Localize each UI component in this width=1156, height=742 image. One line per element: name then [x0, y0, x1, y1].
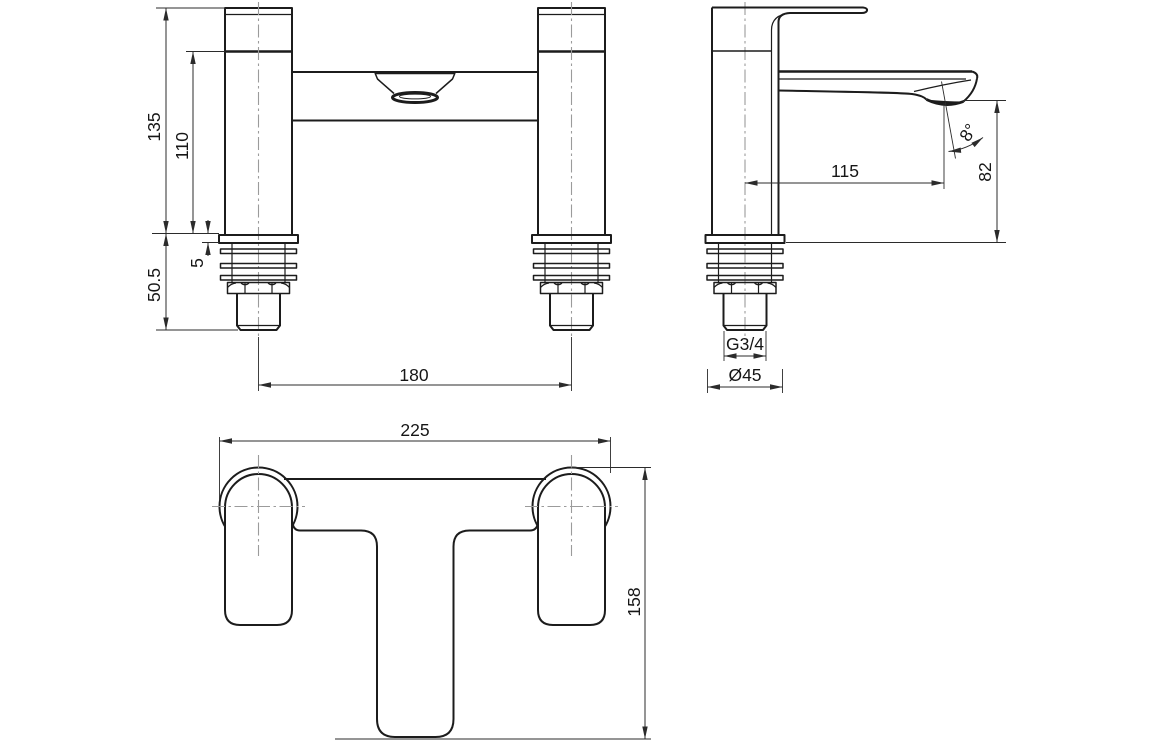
technical-drawing-canvas: 135 110 50.5 5 180: [0, 0, 1156, 742]
spout-end-cap: [972, 72, 977, 79]
dim-label-overall-height: 135: [144, 112, 164, 141]
dim-label-flange-thickness: 5: [187, 258, 207, 268]
plan-view: 225 158: [212, 420, 651, 739]
plan-body-and-spout-outline: [293, 524, 539, 738]
lever-outline: [712, 8, 867, 23]
dim-label-flange-diameter: Ø45: [728, 365, 761, 385]
lever-inner-bend: [772, 13, 791, 30]
side-dimensions: 115 82 8° G3/4 Ø45: [708, 82, 1007, 394]
side-spout: [779, 72, 978, 106]
dim-label-spout-reach: 115: [831, 161, 859, 181]
aerator: [375, 73, 455, 103]
dim-label-thread-size: G3/4: [726, 334, 764, 354]
dim-label-body-height: 110: [172, 132, 192, 160]
spout-underside: [779, 91, 927, 100]
dim-label-overall-depth: 158: [624, 587, 644, 616]
side-lever-handle: [712, 8, 867, 31]
front-view: 135 110 50.5 5 180: [144, 2, 611, 391]
dim-label-outlet-height: 82: [975, 162, 995, 181]
nozzle-front-face: [964, 79, 978, 102]
dim-label-base-height: 50.5: [144, 268, 164, 302]
aerator-sides: [375, 73, 455, 94]
aerator-mesh: [400, 94, 431, 99]
dim-label-pillar-centres: 180: [399, 365, 428, 385]
side-base: [706, 2, 785, 340]
dim-label-overall-width: 225: [400, 420, 429, 440]
front-dimensions: 135 110 50.5 5 180: [144, 8, 572, 391]
side-view: 115 82 8° G3/4 Ø45: [706, 2, 1007, 393]
tap-technical-drawing: 135 110 50.5 5 180: [0, 0, 1156, 742]
